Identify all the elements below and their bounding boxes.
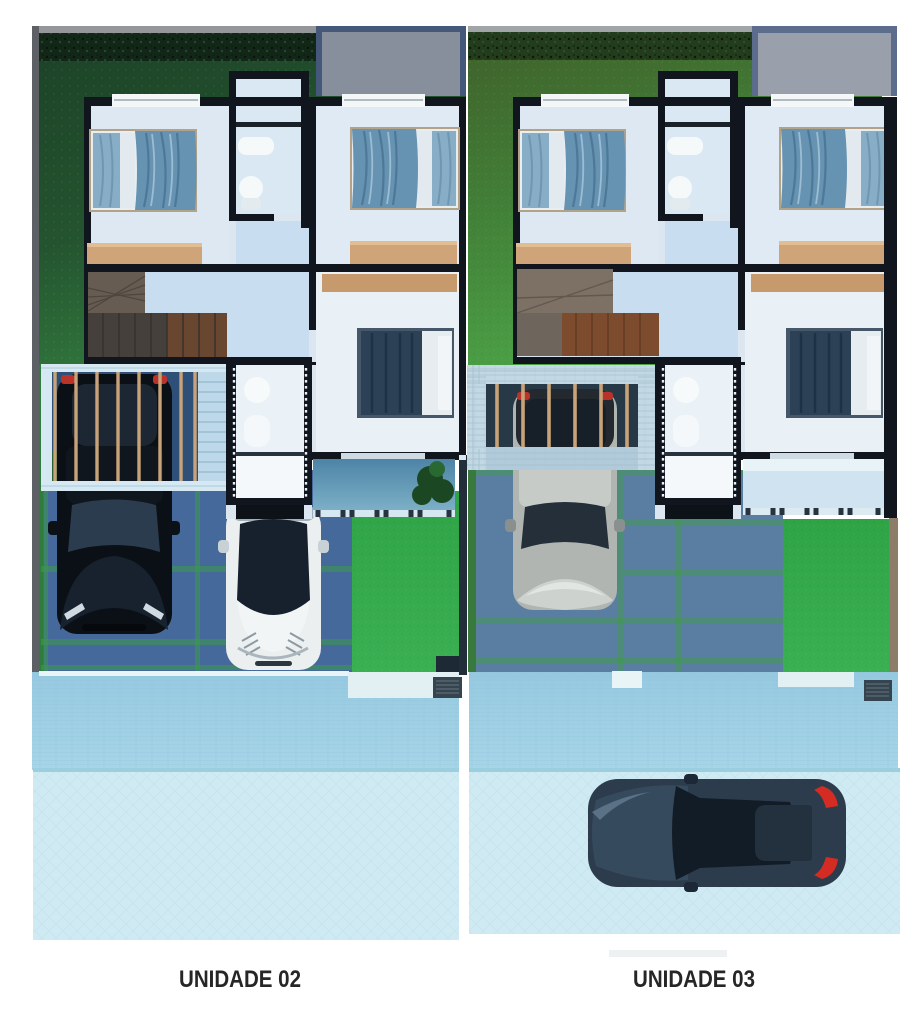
svg-text:UNIDADE 02: UNIDADE 02 bbox=[179, 966, 301, 993]
svg-text:UNIDADE 03: UNIDADE 03 bbox=[633, 966, 755, 993]
